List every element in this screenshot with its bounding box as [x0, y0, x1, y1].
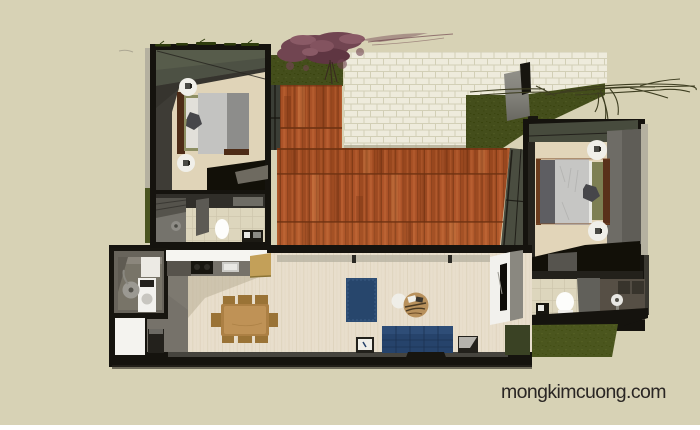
svg-text:mongkimcuong.com: mongkimcuong.com [501, 381, 666, 403]
